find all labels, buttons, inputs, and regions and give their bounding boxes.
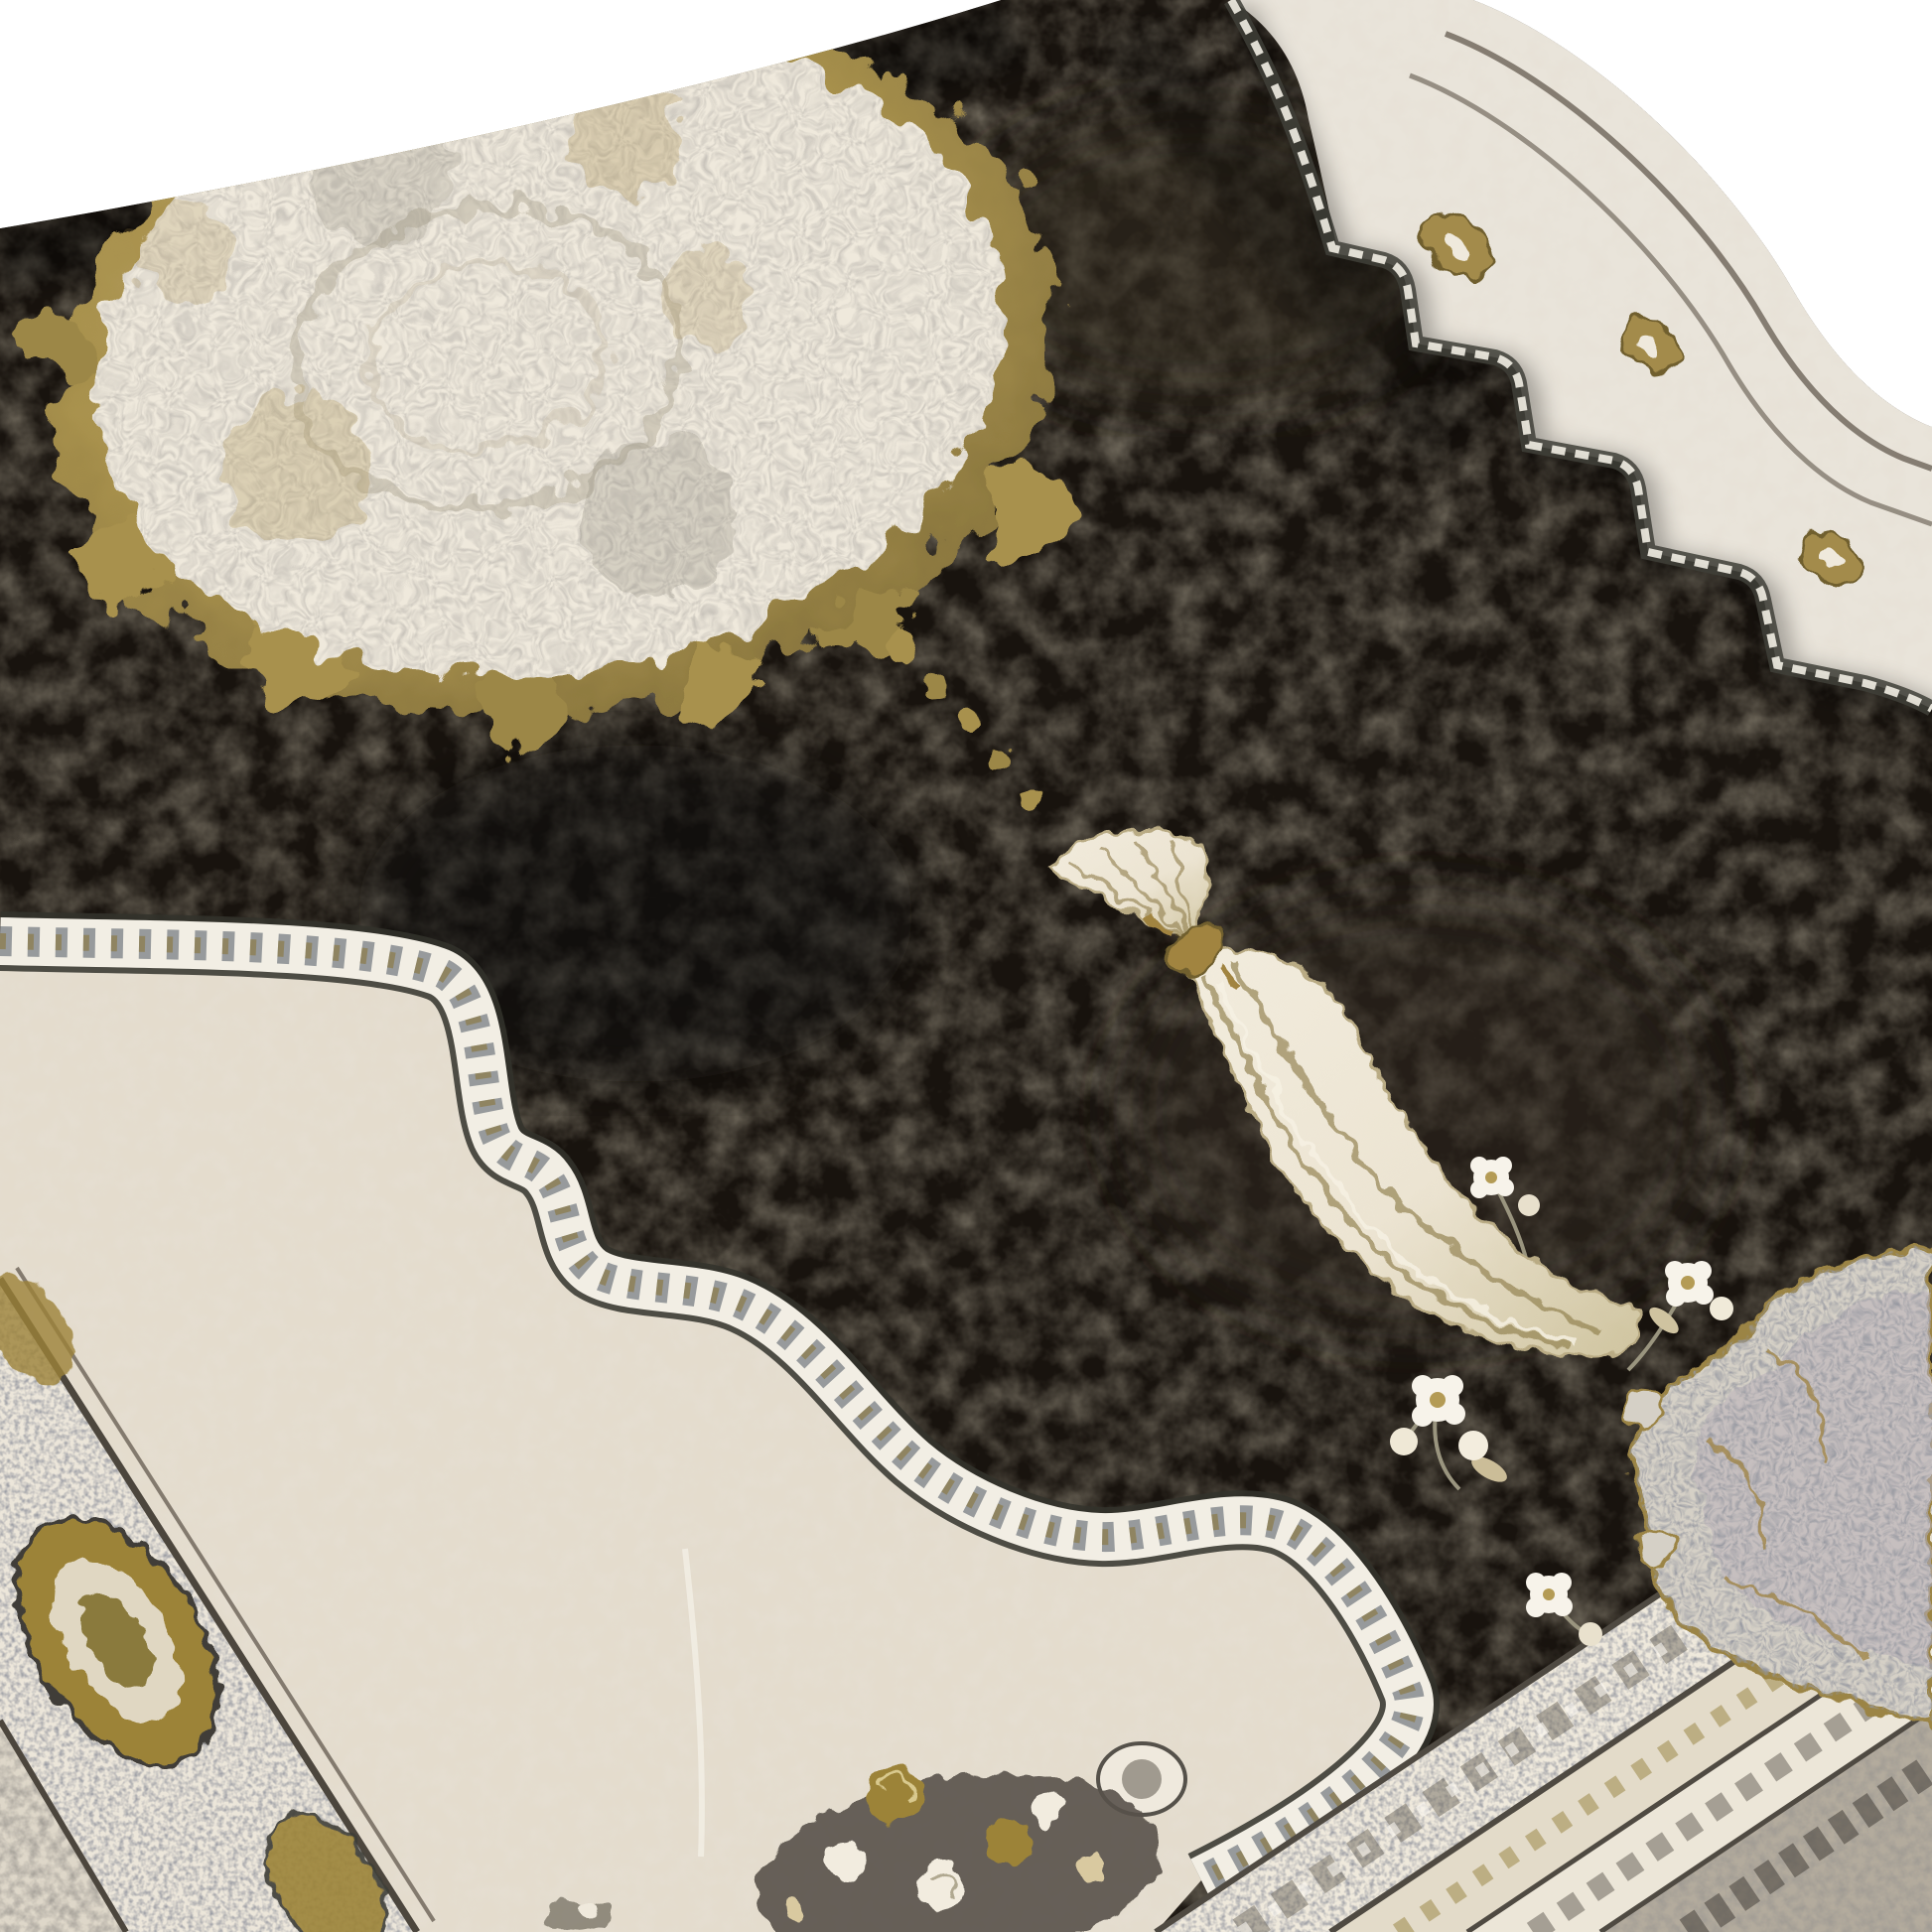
bud: [1518, 1194, 1540, 1216]
spandrel-lobe: [1638, 1531, 1674, 1567]
chain-leaf: [990, 750, 1012, 771]
flower-center: [1543, 1588, 1555, 1600]
white-rose: [1031, 1789, 1066, 1825]
bud: [1458, 1431, 1488, 1460]
bud: [1390, 1428, 1418, 1455]
petal: [1526, 1573, 1546, 1592]
motif-core: [1122, 1759, 1162, 1799]
gold-wash: [132, 202, 235, 305]
sprig-blossom: [579, 1899, 597, 1917]
product-photo: Ornate black and cream medallion area ru…: [0, 0, 1932, 1932]
grey-wash: [576, 437, 735, 596]
petal: [1552, 1573, 1572, 1592]
small-sprig: [544, 1900, 612, 1932]
white-rose: [826, 1843, 866, 1882]
petal: [1494, 1157, 1512, 1174]
bud: [1579, 1622, 1602, 1646]
bud: [1710, 1297, 1733, 1320]
petal: [1444, 1403, 1465, 1425]
spandrel-lobe: [1622, 1390, 1662, 1430]
petal: [1526, 1597, 1546, 1617]
petal: [1412, 1405, 1434, 1427]
petal: [1470, 1157, 1488, 1174]
rug-photo-svg: Ornate black and cream medallion area ru…: [0, 0, 1932, 1932]
petal: [1694, 1285, 1714, 1305]
petal: [1692, 1261, 1712, 1281]
petal: [1442, 1375, 1463, 1397]
petal: [1553, 1596, 1573, 1616]
fringe-leaf: [985, 479, 1060, 554]
bud: [1080, 1857, 1104, 1880]
petal: [1496, 1178, 1514, 1196]
gold-rose: [985, 1819, 1033, 1866]
chain-leaf: [924, 672, 950, 698]
chain-leaf: [957, 709, 981, 733]
petal: [1412, 1375, 1434, 1397]
chain-leaf: [1021, 790, 1040, 810]
petal: [1470, 1180, 1488, 1198]
white-rose: [917, 1863, 965, 1910]
petal: [1666, 1287, 1686, 1307]
flower-center: [1430, 1392, 1446, 1408]
gold-wash: [657, 250, 753, 345]
bud: [782, 1896, 806, 1920]
rug: [0, 0, 1932, 1932]
petal: [1665, 1261, 1685, 1281]
flower-center: [1681, 1276, 1695, 1290]
fringe-leaf: [26, 304, 93, 371]
gold-wash: [223, 392, 372, 541]
fringe-leaf: [673, 643, 757, 727]
flower-center: [1485, 1172, 1497, 1183]
chain-leaf: [886, 631, 917, 663]
